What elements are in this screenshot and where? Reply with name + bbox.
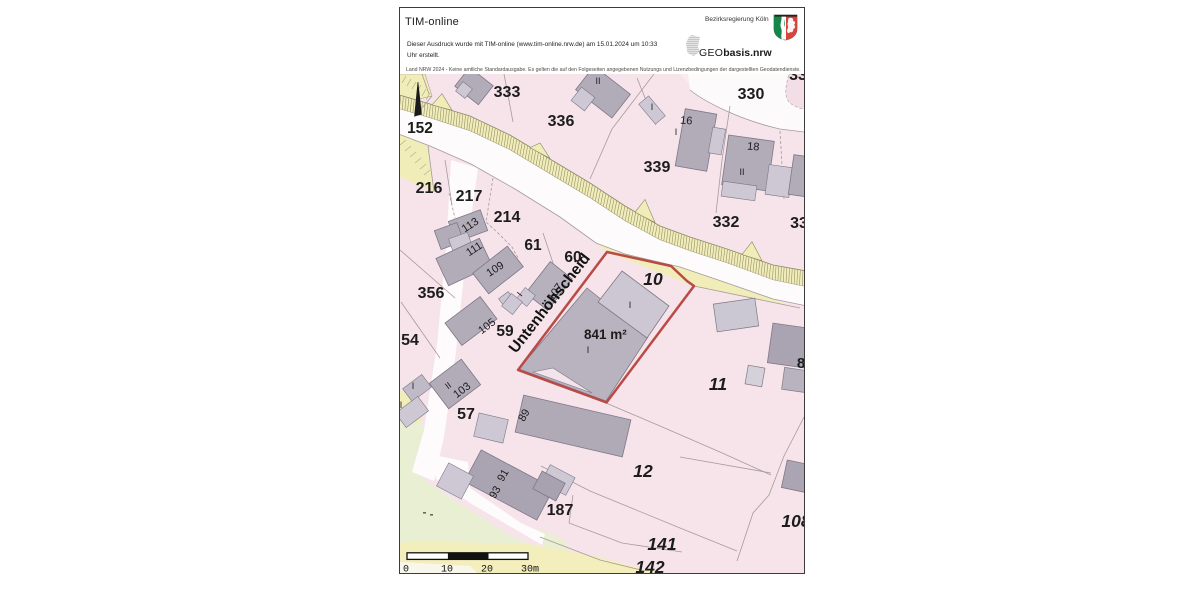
svg-text:152: 152 [407,120,433,137]
svg-text:339: 339 [644,159,671,176]
svg-text:18: 18 [747,141,760,154]
svg-text:10: 10 [441,565,453,575]
svg-text:20: 20 [481,565,493,575]
svg-text:141: 141 [647,534,676,554]
svg-text:57: 57 [457,406,475,423]
svg-text:142: 142 [635,557,664,574]
svg-text:I: I [675,127,678,137]
svg-text:841 m²: 841 m² [584,327,627,342]
svg-text:8: 8 [797,355,804,372]
svg-text:I: I [412,381,415,391]
svg-text:I: I [651,102,654,112]
svg-text:II: II [739,167,744,177]
svg-text:356: 356 [418,285,445,302]
svg-text:33: 33 [789,74,804,84]
svg-text:187: 187 [547,502,574,519]
svg-text:214: 214 [494,209,521,226]
svg-text:II: II [595,76,600,86]
svg-text:0: 0 [403,565,409,575]
svg-text:216: 216 [416,180,443,197]
svg-text:11: 11 [709,374,727,394]
svg-text:12: 12 [633,461,653,481]
svg-text:I: I [587,345,590,355]
svg-text:108: 108 [781,511,804,531]
svg-text:330: 330 [738,86,765,103]
svg-text:I: I [629,300,632,310]
svg-text:61: 61 [524,237,542,254]
svg-text:332: 332 [713,214,740,231]
svg-text:16: 16 [680,115,693,128]
svg-text:10: 10 [643,269,663,289]
svg-text:336: 336 [548,113,575,130]
svg-text:54: 54 [401,332,419,349]
svg-text:I: I [400,400,402,410]
svg-text:33: 33 [790,215,804,232]
svg-text:333: 333 [494,84,521,101]
svg-text:30m: 30m [521,565,539,575]
svg-text:217: 217 [456,188,483,205]
